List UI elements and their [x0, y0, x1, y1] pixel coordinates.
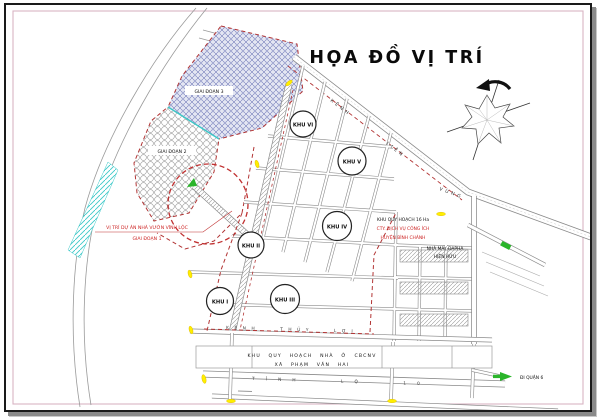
map-sheet: GIAI ĐOẠN 3 GIAI ĐOẠN 2: [4, 3, 592, 412]
zone-khu-3: KHU III: [271, 285, 300, 314]
zone-khu-6: KHU VI: [290, 111, 316, 137]
yellow-marker: [227, 399, 236, 403]
planning-area-line1: KHU QUY HOẠCH 16 Ha: [377, 217, 429, 223]
phase3-label: GIAI ĐOẠN 3: [194, 89, 223, 95]
zone-khu-2: KHU II: [238, 232, 264, 258]
zone-label: KHU II: [242, 244, 260, 250]
zone-khu-1: KHU I: [207, 288, 234, 315]
factory-label-line1: NHÀ MÁY DAPHA: [427, 245, 464, 252]
zone-label: KHU V: [343, 160, 361, 166]
zone-khu-4: KHU IV: [323, 212, 352, 241]
zone-label: KHU VI: [293, 123, 313, 129]
yellow-marker: [437, 212, 446, 216]
zone-label: KHU IV: [327, 225, 347, 231]
exit-arrow-icon: [500, 372, 512, 381]
page-title: HỌA ĐỒ VỊ TRÍ: [309, 44, 484, 68]
yellow-marker: [388, 399, 397, 403]
map-canvas: GIAI ĐOẠN 3 GIAI ĐOẠN 2: [6, 5, 590, 410]
south-roads: [190, 331, 558, 410]
exit-east-label: ĐI QUẬN 6: [520, 374, 543, 381]
zone-label: KHU I: [212, 300, 228, 306]
project-location-line2: GIAI ĐOẠN 1: [132, 236, 161, 242]
canal-strip: [68, 162, 118, 258]
zone-label: KHU III: [275, 298, 295, 304]
phase2-label: GIAI ĐOẠN 2: [157, 149, 186, 155]
project-location-line1: VỊ TRÍ DỰ ÁN NHÀ VƯỜN VĨNH LỘC: [106, 224, 188, 231]
compass-rose-icon: [447, 79, 530, 160]
yellow-marker: [254, 160, 260, 169]
planning-area-line2: CTY. DỊCH VỤ CÔNG ÍCH: [377, 225, 430, 232]
housing-label-line2: XÃ PHẠM VĂN HAI: [275, 361, 350, 368]
yellow-marker: [188, 326, 194, 335]
exit-arrow-tail: [493, 375, 501, 378]
zone-khu-5: KHU V: [338, 147, 366, 175]
planning-area-line3: HUYỆN BÌNH CHÁNH: [381, 233, 426, 241]
